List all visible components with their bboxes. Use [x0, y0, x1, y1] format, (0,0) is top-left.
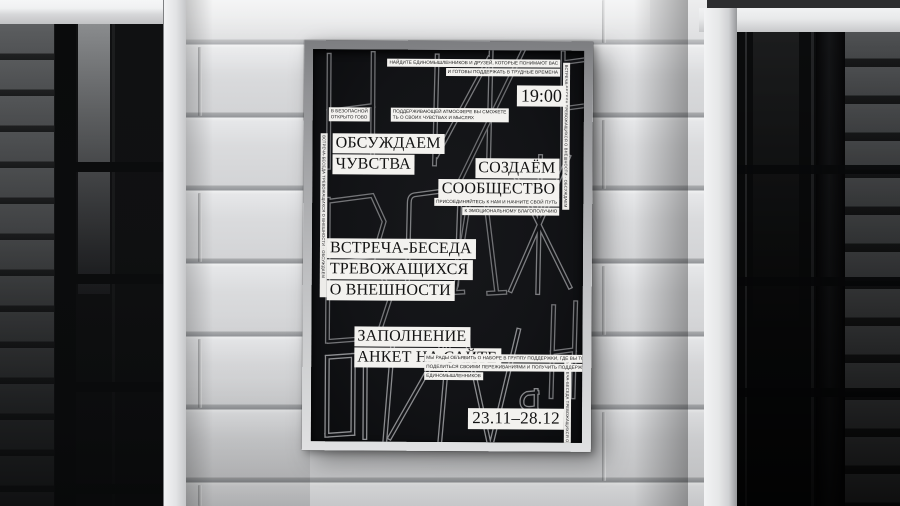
left-window-glass [0, 24, 163, 506]
wall-panel-joint [602, 266, 606, 335]
note-line: ЕДИНОМЫШЛЕННИКОВ [424, 372, 483, 380]
note-safe-atmosphere-right: ПОДДЕРЖИВАЮЩЕЙ АТМОСФЕРЕ ВЫ СМОЖЕТЕ ТЬ О… [391, 108, 509, 123]
headline-line: ВСТРЕЧА-БЕСЕДА [327, 238, 476, 259]
right-window-glass [737, 30, 900, 506]
headline-line: СООБЩЕСТВО [439, 179, 560, 200]
headline-line: СОЗДАЁМ [475, 158, 559, 179]
right-window [685, 0, 900, 506]
note-join-us: ПРИСОЕДИНЯЙТЕСЬ К НАМ И НАЧНИТЕ СВОЙ ПУТ… [434, 198, 559, 216]
scene: ВСТРЕЧА-БЕСЕДА ТРЕВОЖАЩИХСЯ О ВНЕШНОСТИ … [0, 0, 900, 506]
note-line: НАЙДИТЕ ЕДИНОМЫШЛЕННИКОВ И ДРУЗЕЙ, КОТОР… [387, 59, 560, 68]
headline-line: ОБСУЖДАЕМ [333, 133, 445, 154]
wall-panel-joint [198, 339, 202, 408]
event-time: 19:00 [517, 85, 566, 106]
poster-frame: ВСТРЕЧА-БЕСЕДА ТРЕВОЖАЩИХСЯ О ВНЕШНОСТИ … [302, 40, 593, 452]
wall-panel-joint [602, 120, 606, 189]
note-line: МЫ РАДЫ ОБЪЯВИТЬ О НАБОРЕ В ГРУППУ ПОДДЕ… [424, 354, 584, 363]
note-line: К ЭМОЦИОНАЛЬНОМУ БЛАГОПОЛУЧИЮ [462, 207, 559, 216]
headline-line: О ВНЕШНОСТИ [327, 280, 455, 301]
wall-panel-joint [198, 193, 202, 262]
headline-line: ТРЕВОЖАЩИХСЯ [327, 259, 473, 280]
right-window-top-shadow [707, 0, 900, 8]
wall-panel-joint [602, 0, 606, 43]
note-line: И ГОТОВЫ ПОДДЕРЖАТЬ В ТРУДНЫЕ ВРЕМЕНА [446, 68, 560, 77]
window-glass-shading [737, 30, 900, 506]
note-line: ПРИСОЕДИНЯЙТЕСЬ К НАМ И НАЧНИТЕ СВОЙ ПУТ… [434, 198, 559, 207]
left-window [0, 0, 185, 506]
poster: ВСТРЕЧА-БЕСЕДА ТРЕВОЖАЩИХСЯ О ВНЕШНОСТИ … [311, 49, 584, 443]
wall-panel-joint [198, 47, 202, 116]
headline-line: ЗАПОЛНЕНИЕ [354, 326, 470, 347]
wall-panel-joint [198, 485, 202, 506]
note-safe-atmosphere-left: В БЕЗОПАСНОЙ ОТКРЫТО ГОВО [329, 107, 370, 121]
headline-discuss-feelings: ОБСУЖДАЕМ ЧУВСТВА [332, 133, 444, 175]
window-glass-shading [0, 24, 163, 506]
headline-meeting-talk: ВСТРЕЧА-БЕСЕДА ТРЕВОЖАЩИХСЯ О ВНЕШНОСТИ [327, 238, 476, 301]
note-find-likeminded: НАЙДИТЕ ЕДИНОМЫШЛЕННИКОВ И ДРУЗЕЙ, КОТОР… [387, 59, 560, 77]
headline-create-community: СОЗДАЁМ СООБЩЕСТВО [439, 158, 560, 200]
note-line: ОТКРЫТО ГОВО [331, 114, 368, 120]
left-window-lintel [0, 0, 185, 24]
note-line: ПОДЕЛИТЬСЯ СВОИМИ ПЕРЕЖИВАНИЯМИ И ПОЛУЧИ… [424, 363, 584, 372]
headline-line: ЧУВСТВА [332, 154, 415, 175]
note-recruitment: МЫ РАДЫ ОБЪЯВИТЬ О НАБОРЕ В ГРУППУ ПОДДЕ… [424, 354, 584, 381]
note-line: ТЬ О СВОИХ ЧУВСТВАХ И МЫСЛЯХ [393, 115, 507, 122]
left-window-jamb [163, 0, 186, 506]
right-window-jamb [704, 8, 737, 506]
event-dates: 23.11–28.12 [468, 408, 564, 430]
wall-panel-joint [602, 412, 606, 481]
